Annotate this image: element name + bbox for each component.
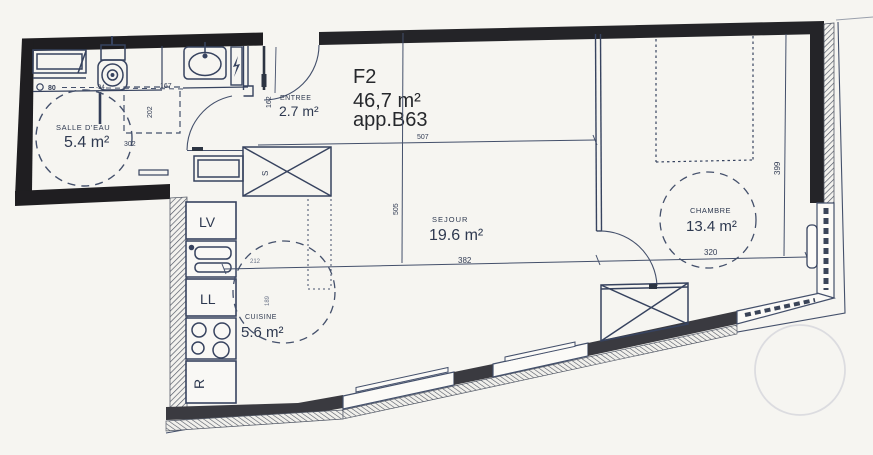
svg-text:CHAMBRE: CHAMBRE [690,206,731,215]
svg-text:80: 80 [48,85,56,92]
svg-text:13.4 m²: 13.4 m² [686,218,737,235]
svg-text:SEJOUR: SEJOUR [432,215,468,224]
svg-text:app.B63: app.B63 [353,109,428,131]
svg-text:320: 320 [704,248,718,257]
svg-text:CUISINE: CUISINE [245,314,277,321]
svg-text:202: 202 [147,106,154,118]
svg-text:LV: LV [199,214,216,230]
svg-text:-94: -94 [96,85,105,91]
svg-text:302: 302 [124,141,136,148]
svg-text:S: S [261,171,270,176]
svg-text:382: 382 [458,256,472,265]
svg-text:212: 212 [250,259,261,265]
svg-text:2.7 m²: 2.7 m² [279,103,319,119]
svg-text:19.6 m²: 19.6 m² [429,227,484,244]
svg-text:LL: LL [200,291,216,307]
svg-text:162: 162 [266,96,273,108]
svg-text:F2: F2 [353,66,376,88]
svg-text:SALLE D'EAU: SALLE D'EAU [56,123,110,132]
svg-text:505: 505 [393,203,400,215]
svg-text:189: 189 [265,295,271,306]
svg-text:5.6 m²: 5.6 m² [241,324,284,341]
svg-text:167: 167 [160,83,172,90]
svg-text:5.4 m²: 5.4 m² [64,134,110,151]
svg-text:399: 399 [773,161,782,175]
svg-text:ENTREE: ENTREE [280,95,311,102]
svg-text:R: R [191,379,207,389]
svg-text:507: 507 [417,134,429,141]
